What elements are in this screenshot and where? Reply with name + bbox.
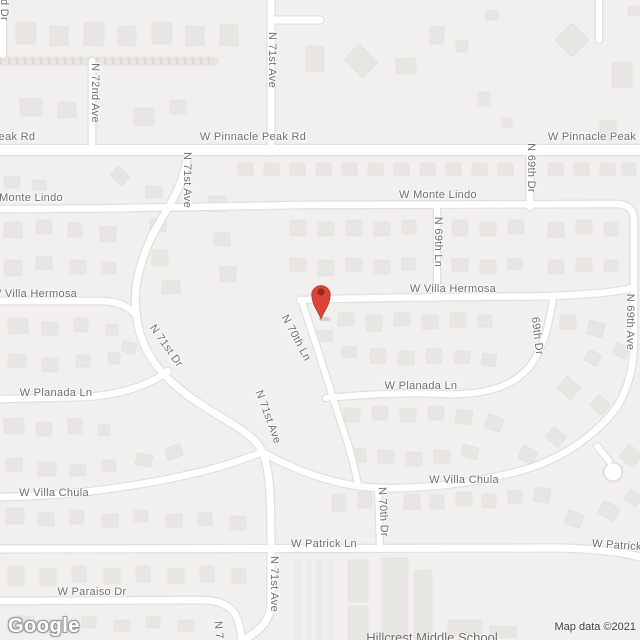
poi-label-hillcrest-middle-school[interactable]: Hillcrest Middle School (366, 630, 498, 640)
google-logo[interactable]: Google (8, 615, 80, 638)
map-canvas[interactable]: d DrN 72nd AveN 71st Aveeak RdW Pinnacle… (0, 0, 640, 640)
map-attribution: Map data ©2021 (555, 621, 637, 633)
